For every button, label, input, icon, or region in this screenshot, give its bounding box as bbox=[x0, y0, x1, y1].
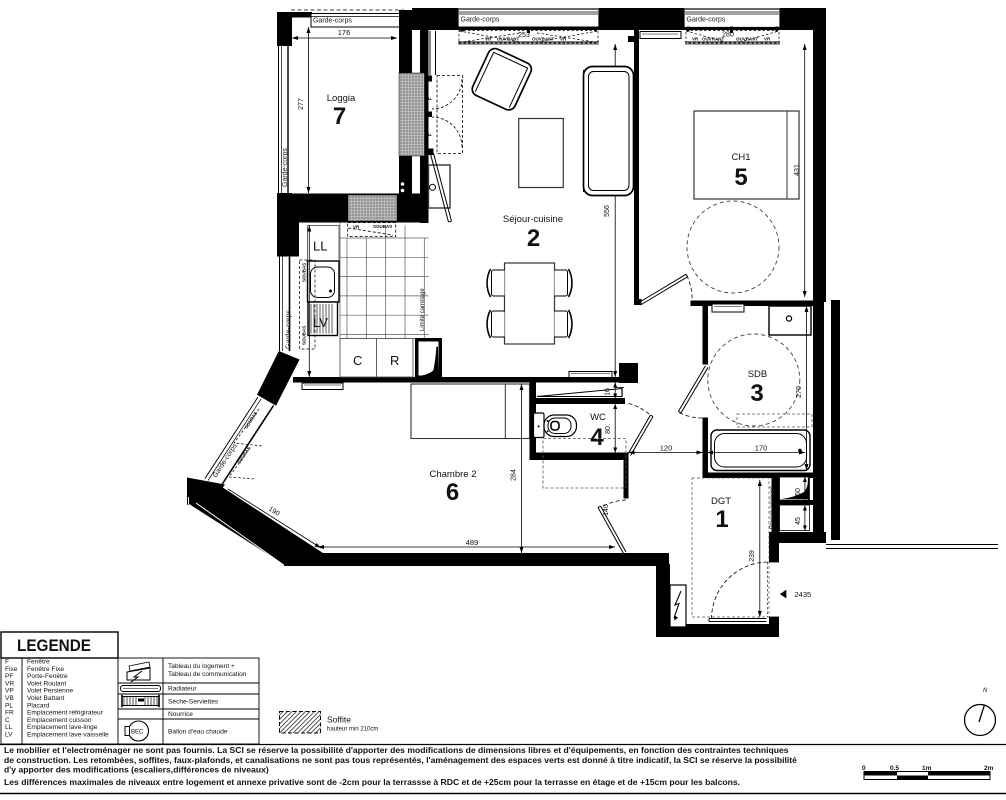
svg-text:BEC: BEC bbox=[131, 730, 144, 736]
svg-text:Volet Roulant: Volet Roulant bbox=[27, 680, 66, 687]
svg-text:SDB: SDB bbox=[748, 369, 768, 380]
svg-text:Garde-corps: Garde-corps bbox=[282, 148, 289, 187]
svg-text:OUVRANT: OUVRANT bbox=[702, 37, 725, 42]
svg-text:Emplacement lave-linge: Emplacement lave-linge bbox=[27, 724, 98, 731]
svg-text:LL: LL bbox=[313, 239, 327, 254]
svg-text:Garde-corps: Garde-corps bbox=[687, 17, 726, 24]
svg-text:OUVRANT: OUVRANT bbox=[532, 37, 555, 42]
svg-text:LL: LL bbox=[5, 724, 13, 731]
svg-text:C: C bbox=[353, 353, 362, 368]
svg-text:253: 253 bbox=[518, 32, 530, 39]
svg-text:OUVRANT: OUVRANT bbox=[497, 37, 520, 42]
svg-text:170: 170 bbox=[755, 444, 768, 453]
svg-text:PL: PL bbox=[5, 702, 13, 709]
svg-text:284: 284 bbox=[511, 469, 518, 481]
svg-text:2m: 2m bbox=[984, 765, 994, 772]
svg-text:R: R bbox=[390, 353, 399, 368]
svg-text:PF: PF bbox=[5, 673, 13, 680]
svg-text:1m: 1m bbox=[922, 765, 932, 772]
svg-text:Radiateur: Radiateur bbox=[168, 686, 197, 693]
svg-text:16: 16 bbox=[605, 388, 612, 396]
svg-text:F: F bbox=[428, 97, 433, 100]
svg-text:F: F bbox=[428, 133, 433, 136]
svg-text:VR: VR bbox=[428, 74, 433, 81]
svg-text:2435: 2435 bbox=[795, 590, 812, 599]
svg-text:Emplacement lave-vaisselle: Emplacement lave-vaisselle bbox=[27, 732, 109, 739]
svg-text:270: 270 bbox=[796, 386, 803, 398]
svg-text:6: 6 bbox=[446, 479, 459, 506]
svg-text:Volet Persienne: Volet Persienne bbox=[27, 688, 74, 695]
svg-text:C: C bbox=[5, 717, 10, 724]
svg-text:VR: VR bbox=[692, 37, 699, 42]
svg-text:239: 239 bbox=[749, 550, 756, 562]
svg-text:45: 45 bbox=[795, 517, 802, 525]
svg-text:Le mobilier et l'electroménage: Le mobilier et l'electroménager ne sont … bbox=[4, 745, 789, 755]
svg-text:VR: VR bbox=[353, 225, 360, 230]
svg-text:Fenêtre Fixe: Fenêtre Fixe bbox=[27, 666, 64, 673]
svg-text:de construction. Les retombées: de construction. Les retombées, soffites… bbox=[4, 755, 797, 765]
svg-text:3: 3 bbox=[750, 380, 763, 407]
svg-text:Tableau de communication: Tableau de communication bbox=[168, 671, 247, 678]
svg-text:Sèche-Serviettes: Sèche-Serviettes bbox=[168, 699, 219, 706]
svg-text:Emplacement réfrigirateur: Emplacement réfrigirateur bbox=[27, 710, 104, 717]
svg-text:1: 1 bbox=[715, 506, 728, 533]
svg-text:F: F bbox=[5, 659, 9, 666]
svg-text:Les différences maximales de n: Les différences maximales de niveaux ent… bbox=[4, 777, 740, 787]
svg-text:Placard: Placard bbox=[27, 702, 50, 709]
svg-text:50: 50 bbox=[795, 488, 802, 496]
svg-text:431: 431 bbox=[794, 164, 801, 176]
svg-text:SOUBAS: SOUBAS bbox=[373, 224, 392, 229]
svg-text:Nourrice: Nourrice bbox=[168, 711, 193, 718]
svg-text:556: 556 bbox=[604, 205, 611, 217]
svg-text:Volet Battant: Volet Battant bbox=[27, 695, 65, 702]
svg-text:VR: VR bbox=[764, 37, 771, 42]
svg-text:VR: VR bbox=[5, 680, 14, 687]
svg-text:Ballon d'eau chaude: Ballon d'eau chaude bbox=[168, 729, 228, 736]
svg-text:N: N bbox=[983, 688, 988, 694]
svg-text:Garde-corps: Garde-corps bbox=[286, 310, 293, 349]
svg-text:d'y apporter des modifications: d'y apporter des modifications (escalier… bbox=[4, 765, 269, 775]
svg-text:WC: WC bbox=[590, 412, 606, 423]
svg-text:Soffite: Soffite bbox=[327, 715, 351, 725]
svg-text:VP: VP bbox=[5, 688, 14, 695]
svg-text:176: 176 bbox=[338, 28, 351, 37]
svg-text:489: 489 bbox=[466, 538, 479, 547]
svg-text:CH1: CH1 bbox=[731, 152, 750, 163]
svg-text:0: 0 bbox=[862, 765, 866, 772]
svg-text:4: 4 bbox=[590, 424, 604, 451]
svg-text:Séjour-cuisine: Séjour-cuisine bbox=[503, 214, 563, 225]
svg-text:0.5: 0.5 bbox=[890, 765, 899, 772]
svg-text:LEGENDE: LEGENDE bbox=[17, 636, 91, 655]
svg-text:SOUBAS: SOUBAS bbox=[302, 263, 307, 282]
svg-text:FR: FR bbox=[5, 710, 14, 717]
svg-text:80: 80 bbox=[605, 426, 612, 434]
svg-text:5: 5 bbox=[734, 164, 747, 191]
svg-text:Limite carrelage: Limite carrelage bbox=[420, 288, 426, 331]
svg-text:140: 140 bbox=[603, 504, 610, 516]
svg-text:VB: VB bbox=[5, 695, 14, 702]
svg-text:SOUBAS: SOUBAS bbox=[302, 326, 307, 345]
svg-text:Porte-Fenêtre: Porte-Fenêtre bbox=[27, 673, 68, 680]
svg-text:Fixe: Fixe bbox=[5, 666, 18, 673]
svg-text:OUVRANT: OUVRANT bbox=[736, 37, 759, 42]
svg-text:7: 7 bbox=[333, 103, 346, 130]
svg-text:120: 120 bbox=[660, 444, 673, 453]
svg-text:Garde-corps: Garde-corps bbox=[461, 17, 500, 24]
svg-text:277: 277 bbox=[298, 98, 305, 110]
svg-text:hauteur min 210cm: hauteur min 210cm bbox=[327, 727, 378, 733]
svg-text:VR: VR bbox=[485, 37, 492, 42]
svg-text:Placard aménagé: Placard aménagé bbox=[770, 486, 776, 529]
svg-text:Garde-corps: Garde-corps bbox=[313, 18, 352, 25]
svg-text:Tableau du logement +: Tableau du logement + bbox=[168, 663, 235, 670]
svg-text:LV: LV bbox=[5, 732, 13, 739]
svg-text:Fenêtre: Fenêtre bbox=[27, 659, 50, 666]
svg-text:Emplacement cuisson: Emplacement cuisson bbox=[27, 717, 92, 724]
svg-text:VR: VR bbox=[560, 37, 567, 42]
svg-text:2: 2 bbox=[527, 225, 540, 252]
